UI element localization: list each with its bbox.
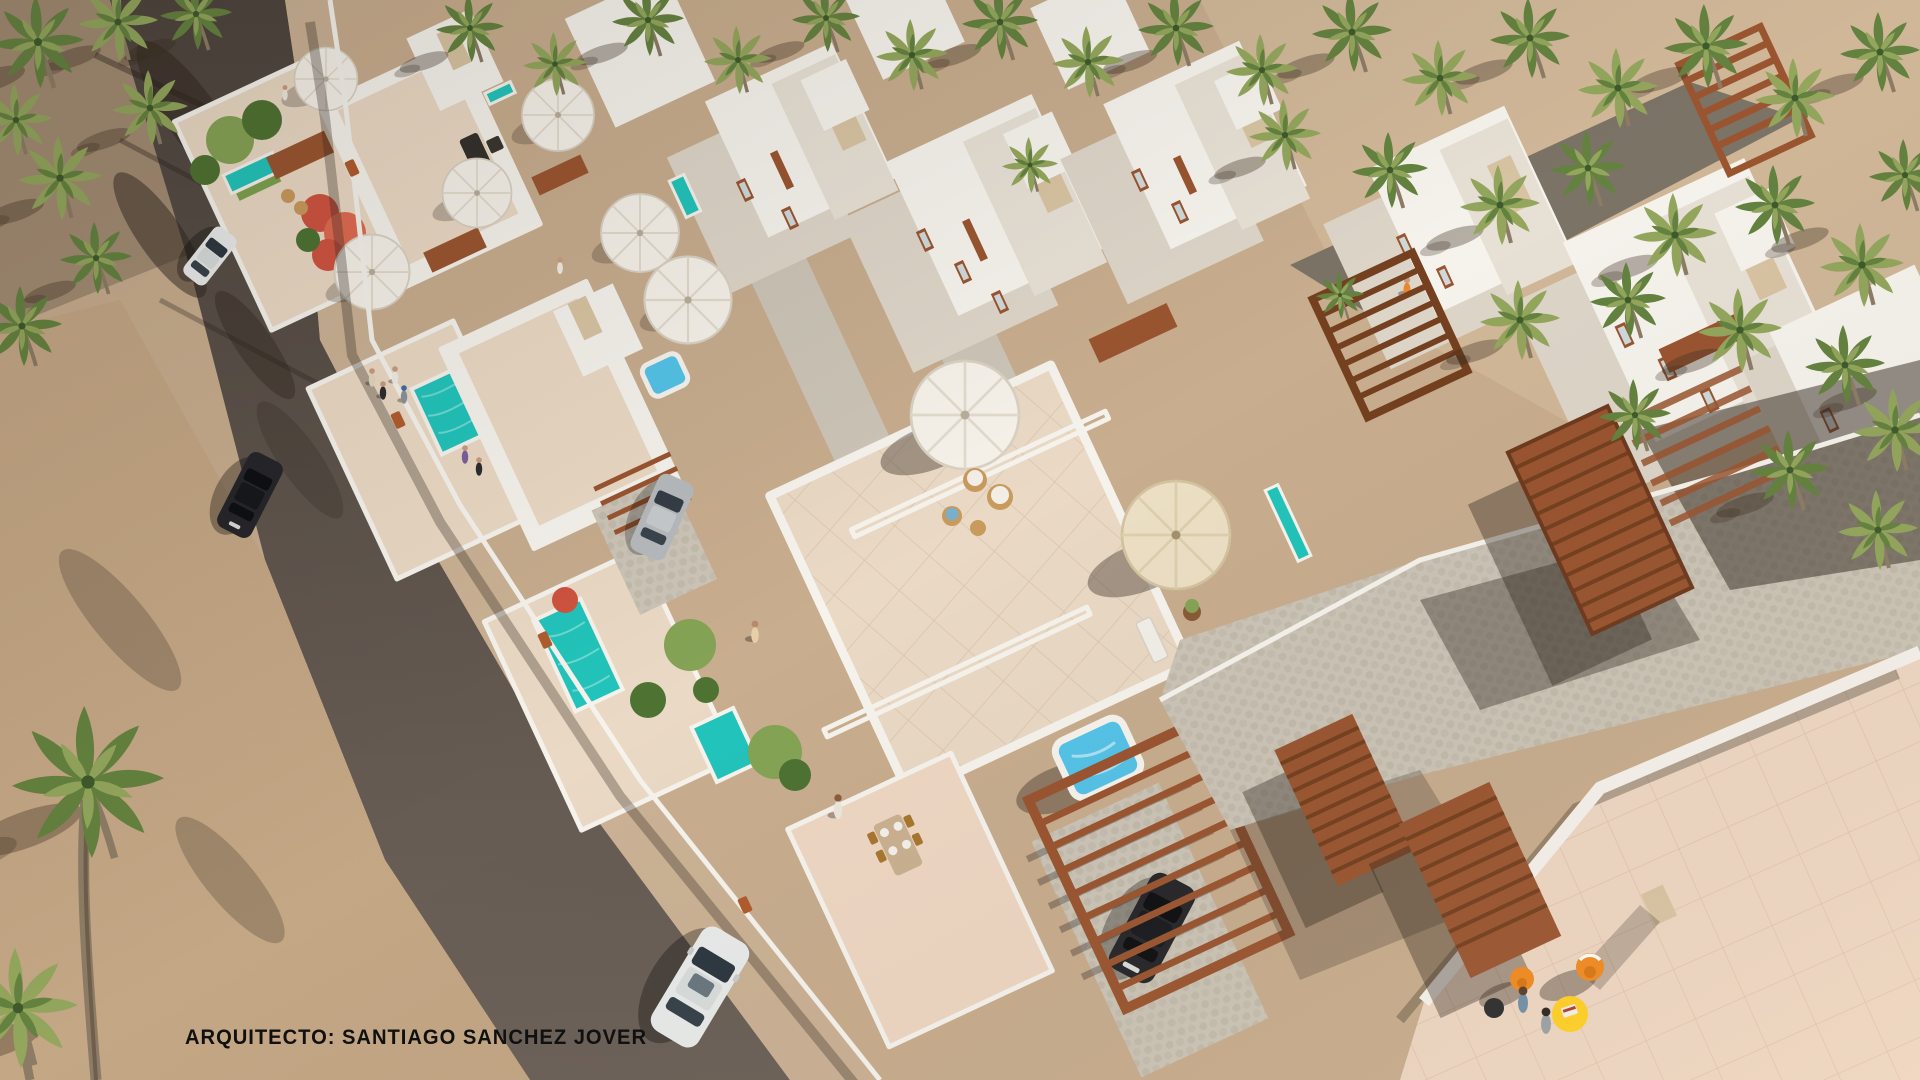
render-canvas: ARQUITECTO: SANTIAGO SANCHEZ JOVER — [0, 0, 1920, 1080]
watermark-text: ARQUITECTO: SANTIAGO SANCHEZ JOVER — [185, 1026, 647, 1049]
scene-svg: ARQUITECTO: SANTIAGO SANCHEZ JOVER — [0, 0, 1920, 1080]
light-overlay — [0, 0, 1920, 1080]
